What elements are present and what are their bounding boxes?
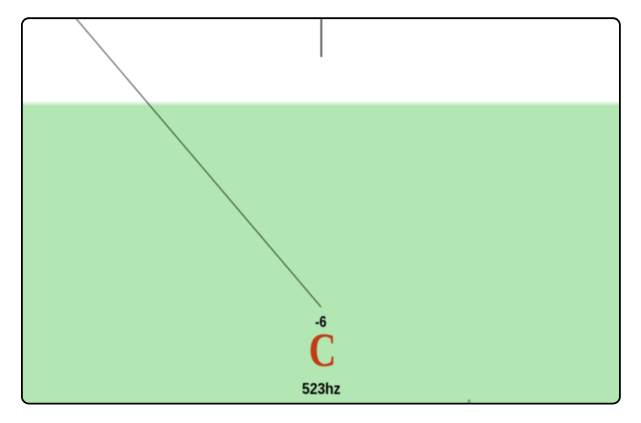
- svg-text:523hz: 523hz: [302, 381, 341, 398]
- svg-text:C: C: [309, 324, 337, 377]
